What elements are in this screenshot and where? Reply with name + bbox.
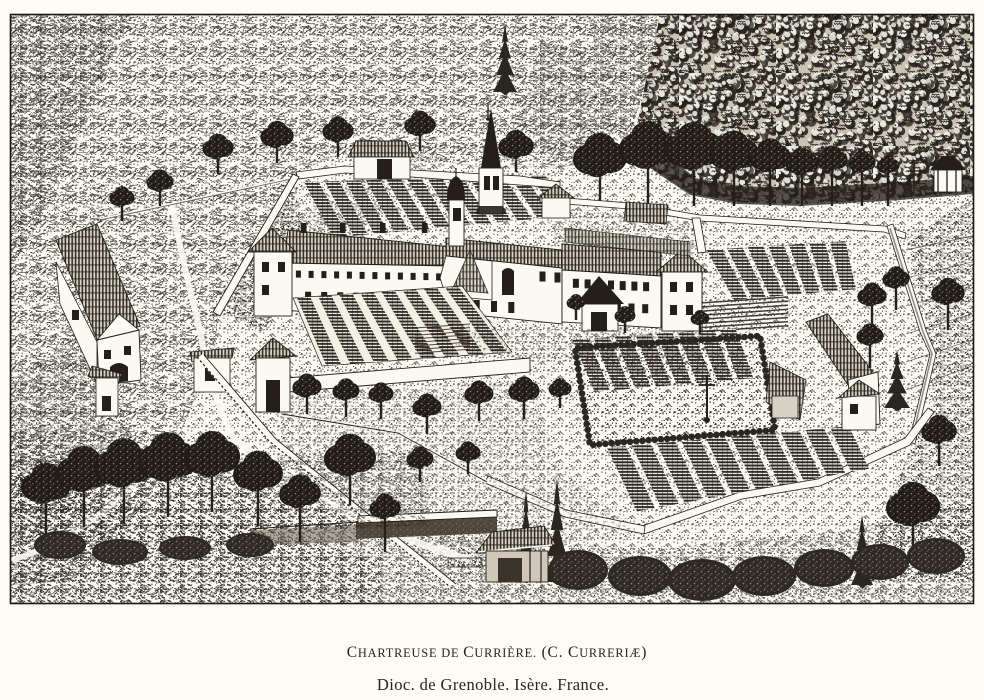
svg-text:Dioc. de Grenoble. Isère. Fran: Dioc. de Grenoble. Isère. France. <box>377 675 609 694</box>
svg-text:CHARTREUSE DE CURRIÈRE. (C. CU: CHARTREUSE DE CURRIÈRE. (C. CURRERIÆ) <box>347 644 647 661</box>
